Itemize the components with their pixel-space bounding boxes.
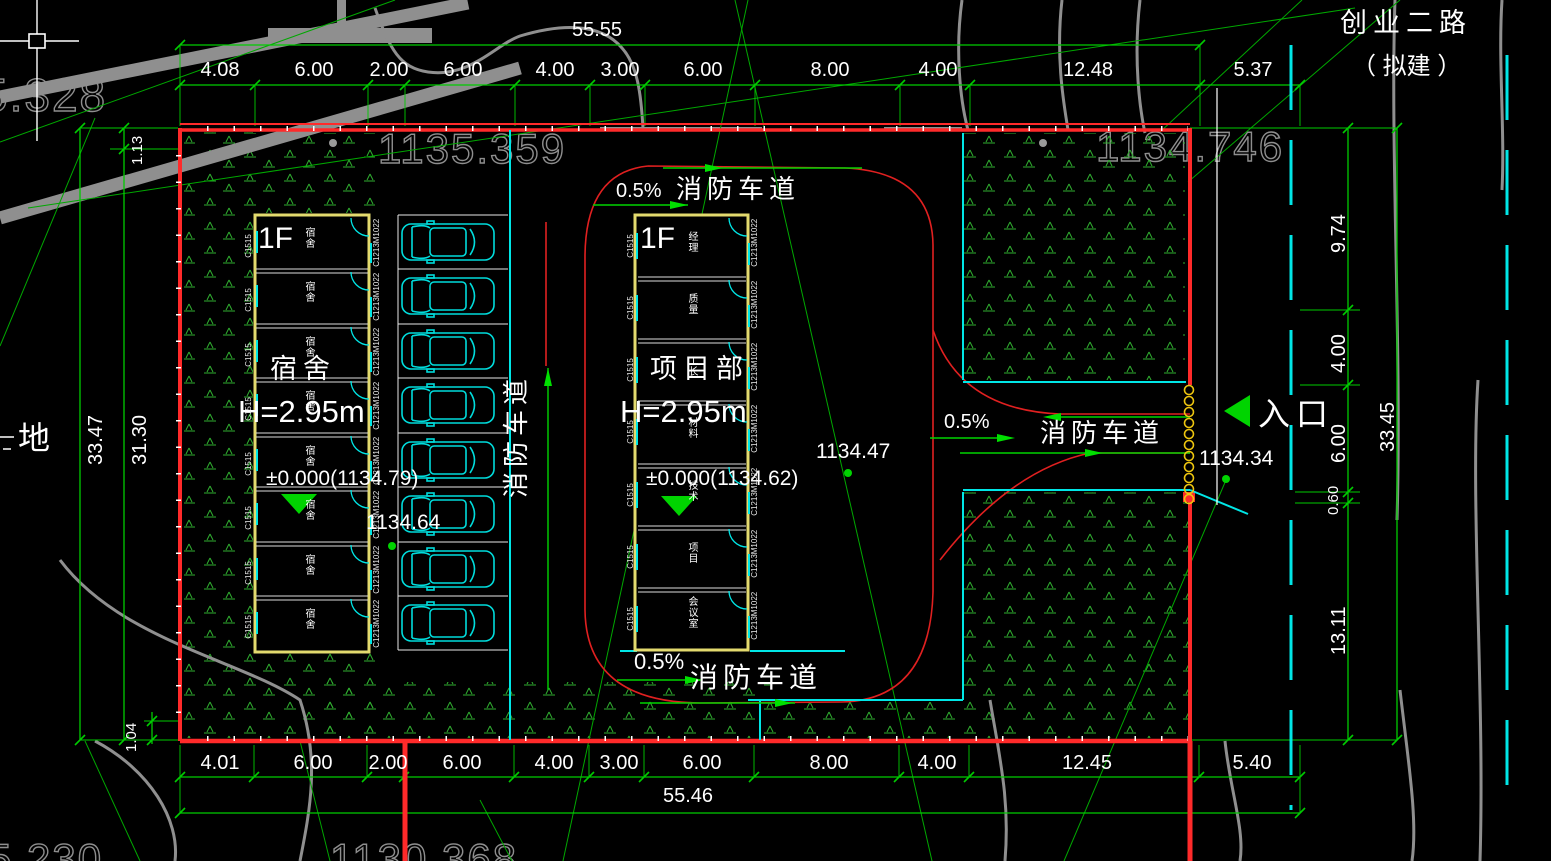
building-name: 项目部 [650,356,749,383]
window-code: C1515 [245,447,253,481]
window-code: C1515 [245,283,253,317]
dim: 4.00 [899,753,975,773]
dim: 13.11 [1329,606,1349,655]
room-label: 宿舍 [303,554,313,576]
window-code: C1515 [627,415,635,449]
window-code: C1213 [751,238,759,272]
window-code: C1515 [245,229,253,263]
dim: 8.00 [792,60,868,80]
window-code: C1213 [373,238,381,272]
room-label: 材料 [686,417,696,439]
fence-ticks-top [182,126,1188,131]
room-label: 经理 [686,231,696,253]
window-code: C1515 [245,392,253,426]
cad-canvas[interactable]: 5.328 1135.359 1134.746 5.230 1130.368 5… [0,0,1551,861]
dim: 5.40 [1214,753,1290,773]
window-code: C1515 [627,540,635,574]
adjacent-area-label: 地 [18,422,50,454]
dim: 6.00 [276,60,352,80]
slope-label: 0.5% [634,651,684,673]
dim: 31.30 [130,415,150,465]
dim: 2.00 [351,60,427,80]
dim: 1.04 [124,723,139,752]
room-label: 质量 [686,293,696,315]
dim-bottom-total: 55.46 [650,786,726,806]
floor-label: 1F [258,224,293,254]
dim: 1.13 [130,136,145,165]
room-label: 项目 [686,542,696,564]
dim: 4.00 [900,60,976,80]
dim: 6.00 [424,753,500,773]
window-code: C1515 [627,602,635,636]
dim: 0.60 [1326,486,1341,515]
building-height: H=2.95m [620,396,747,427]
dim-top-total: 55.55 [559,20,635,40]
fire-lane-label: 消防车道 [1040,420,1164,446]
slope-label: 0.5% [616,181,662,201]
dim: 3.00 [581,753,657,773]
dim: 2.00 [350,753,426,773]
fence-ticks-left [176,130,181,738]
dim: 6.00 [425,60,501,80]
floor-label: 1F [640,224,675,254]
room-label: 宿舍 [303,445,313,467]
window-code: C1213 [373,456,381,490]
window-code: C1515 [627,229,635,263]
room-label: 宿舍 [303,227,313,249]
window-code: C1213 [373,565,381,599]
window-code: C1213 [373,292,381,326]
spot-elevation: 1134.34 [1199,448,1273,469]
window-code: C1515 [245,556,253,590]
dim: 6.00 [275,753,351,773]
spot-elevation: 1134.47 [816,441,890,462]
entrance-label: 入口 [1258,398,1334,430]
building-height: H=2.95m [238,396,365,427]
room-label: 宿舍 [303,336,313,358]
window-code: C1213 [751,362,759,396]
parking-stalls [398,215,508,650]
room-label: 宿舍 [303,390,313,412]
dim-right-total: 33.45 [1378,402,1398,452]
road-status-label: （ 拟建 ） [1352,55,1461,79]
window-code: C1515 [245,501,253,535]
room-label: 宿舍 [303,281,313,303]
room-label: 宿舍 [303,499,313,521]
window-code: C1213 [373,401,381,435]
gate-symbol [1185,386,1194,504]
dim: 4.08 [182,60,258,80]
dim: 3.00 [582,60,658,80]
window-code: C1515 [627,478,635,512]
fire-lane-label: 消防车道 [690,664,822,692]
dim: 8.00 [791,753,867,773]
level-label: ±0.000(1134.62) [646,468,798,489]
building-name: 宿舍 [270,356,336,383]
dim: 6.00 [665,60,741,80]
entrance-arrow-icon [1224,395,1250,427]
dim: 12.45 [1049,753,1125,773]
window-code: C1213 [751,424,759,458]
window-code: C1213 [373,347,381,381]
window-code: C1213 [751,487,759,521]
road-name-label: 创业二路 [1340,10,1472,37]
window-code: C1515 [245,610,253,644]
window-code: C1213 [751,549,759,583]
room-label: 宿舍 [303,608,313,630]
dim: 6.00 [664,753,740,773]
room-label: 会议室 [686,596,696,629]
room-label: 工长 [686,355,696,377]
dim: 4.00 [1329,334,1349,373]
dim: 33.47 [86,415,106,465]
window-code: C1213 [751,611,759,645]
window-code: C1213 [373,619,381,653]
window-code: C1515 [627,353,635,387]
dim: 12.48 [1050,60,1126,80]
window-code: C1515 [245,338,253,372]
window-code: C1213 [751,300,759,334]
window-code: C1213 [373,510,381,544]
window-code: C1515 [627,291,635,325]
dim: 4.01 [182,753,258,773]
slope-label: 0.5% [944,412,990,432]
fire-lane-label: 消防车道 [503,374,529,498]
dim: 5.37 [1215,60,1291,80]
dim: 9.74 [1329,214,1349,253]
fire-lane-label: 消防车道 [676,176,800,202]
fence-ticks-bottom [182,736,1188,741]
room-label: 技术 [686,480,696,502]
level-label: ±0.000(1134.79) [266,468,418,489]
